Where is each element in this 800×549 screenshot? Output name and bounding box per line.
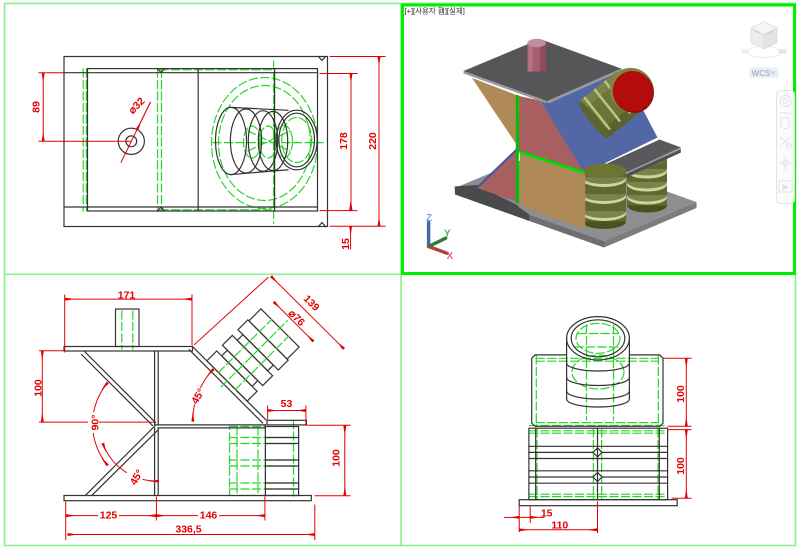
svg-text:⌀76: ⌀76 [286,308,307,329]
svg-text:15: 15 [541,508,553,520]
svg-text:89: 89 [31,101,43,113]
svg-text:100: 100 [675,385,687,403]
svg-text:[+][사용자 횀][실제]: [+][사용자 횀][실제] [405,6,465,16]
svg-text:178: 178 [338,132,350,150]
svg-text:X: X [447,251,454,262]
svg-text:220: 220 [367,132,379,150]
svg-text:Y: Y [444,229,451,240]
svg-text:125: 125 [100,510,118,522]
svg-text:110: 110 [551,520,568,532]
svg-text:90°: 90° [90,415,102,431]
svg-text:15: 15 [340,238,352,250]
svg-text:53: 53 [281,398,293,410]
svg-text:139: 139 [301,293,322,314]
svg-text:100: 100 [33,379,45,397]
svg-text:WCS: WCS [752,69,771,78]
svg-text:⌀32: ⌀32 [126,95,147,116]
svg-text:171: 171 [118,290,136,302]
svg-text:146: 146 [200,510,218,522]
svg-text:Z: Z [426,213,432,224]
svg-text:100: 100 [331,449,343,467]
svg-text:336,5: 336,5 [175,524,201,536]
svg-text:100: 100 [675,457,687,475]
